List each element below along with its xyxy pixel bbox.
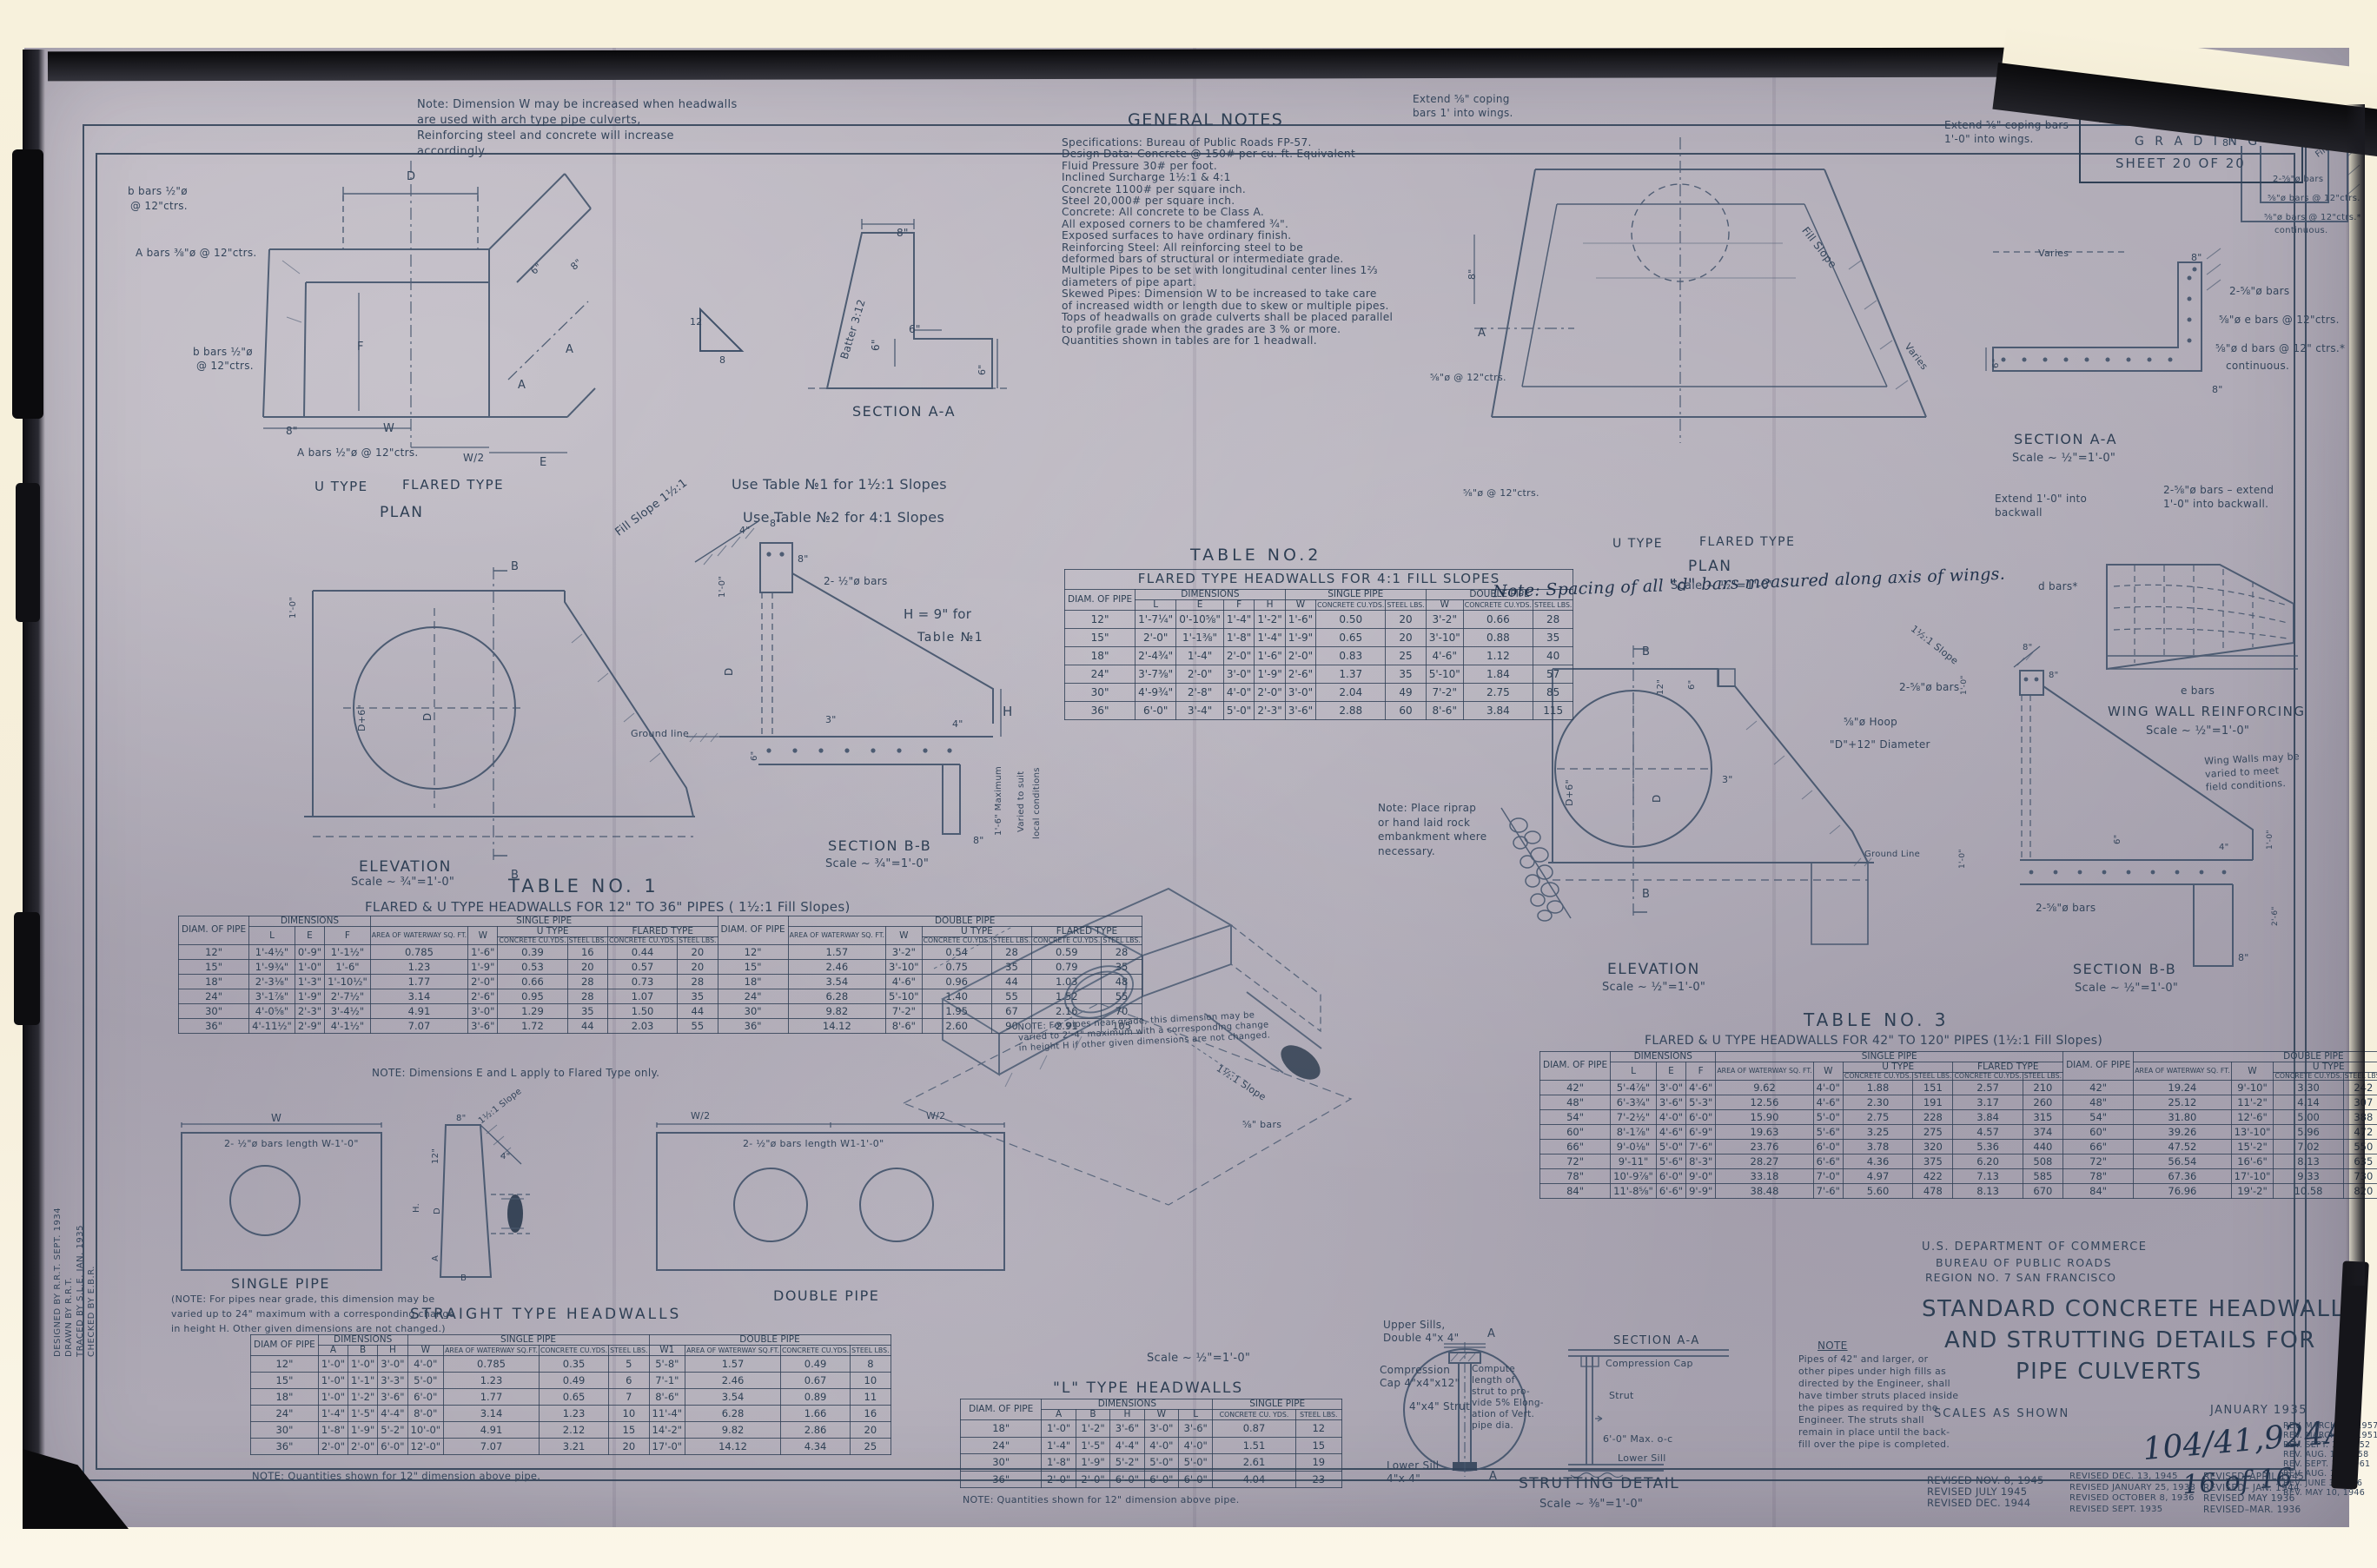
cell: 2.16 bbox=[1032, 1004, 1102, 1019]
cell: 315 bbox=[2023, 1110, 2062, 1125]
table-row: 18"2'-4¾"1'-4"2'-0"1'-6"2'-0"0.83254'-6"… bbox=[1065, 647, 1573, 665]
cell: 2.86 bbox=[780, 1422, 850, 1439]
table-row: 12"1'-7¼"0'-10⅝"1'-4"1'-2"1'-6"0.50203'-… bbox=[1065, 611, 1573, 629]
line: REV. SEPT. 15, 1952 bbox=[2283, 1440, 2377, 1450]
cell: 44 bbox=[678, 1004, 718, 1019]
cell: 0.88 bbox=[1463, 629, 1533, 647]
cell: 0.35 bbox=[539, 1356, 608, 1373]
line: Multiple Pipes to be set with longitudin… bbox=[1062, 265, 1393, 276]
cell: 3'-10" bbox=[886, 960, 923, 975]
section-aa-right-drawing bbox=[1983, 245, 2235, 414]
cell: 3'-4" bbox=[1176, 702, 1224, 720]
strut-compute-note: Computelength ofstrut to pro-vide 5% Elo… bbox=[1472, 1364, 1544, 1432]
cell: 1'-0" bbox=[348, 1356, 378, 1373]
riprap-note: Note: Place riprapor hand laid rockemban… bbox=[1378, 801, 1486, 858]
cell: 44 bbox=[991, 975, 1031, 989]
cell: 2.75 bbox=[1463, 684, 1533, 702]
cell: 60" bbox=[1540, 1125, 1611, 1140]
cell: 7.02 bbox=[2274, 1140, 2343, 1154]
cell: 10'-0" bbox=[407, 1422, 444, 1439]
cell: 2'-0" bbox=[468, 975, 498, 989]
col-header: SINGLE PIPE bbox=[1716, 1052, 2063, 1062]
col-header: CONCRETE CU.YDS. bbox=[922, 937, 991, 945]
section-aa-right-scale: Scale ~ ½"=1'-0" bbox=[2012, 452, 2115, 465]
col-header: A bbox=[318, 1346, 348, 1356]
cell: 0.57 bbox=[607, 960, 677, 975]
section-marker-a: A bbox=[518, 379, 526, 392]
cell: 2'-6" bbox=[1285, 665, 1315, 684]
cell: 1'-5" bbox=[1076, 1437, 1109, 1454]
b-bars-label2: @ 12"ctrs. bbox=[130, 200, 188, 212]
plan-left-caption: PLAN bbox=[380, 504, 423, 521]
col-header: W bbox=[1285, 600, 1315, 611]
cell: 4'-4" bbox=[1110, 1437, 1144, 1454]
line: REVISED DEC. 1944 bbox=[1927, 1498, 2044, 1509]
cell: 6'-6" bbox=[1656, 1184, 1685, 1199]
e-bars-label: e bars bbox=[2181, 685, 2215, 697]
scan-blot-left2 bbox=[16, 483, 40, 622]
col-header: F bbox=[1686, 1062, 1716, 1081]
section-marker-a: A bbox=[566, 343, 573, 356]
table3-title: TABLE NO. 3 bbox=[1804, 1009, 1950, 1030]
cell: 1'-8" bbox=[318, 1422, 348, 1439]
cell: 4'-6" bbox=[1813, 1095, 1843, 1110]
dim-d: D bbox=[433, 1207, 442, 1214]
cell: 1.72 bbox=[498, 1019, 567, 1034]
table-row: 66"9'-0⅛"5'-0"7'-6"23.766'-0"3.783205.36… bbox=[1540, 1140, 2377, 1154]
section-bb-right-caption: SECTION B-B bbox=[2073, 961, 2176, 977]
cell: 1.37 bbox=[1316, 665, 1386, 684]
plan-right-utype: U TYPE bbox=[1612, 537, 1663, 551]
cell: 6'-0" bbox=[1179, 1471, 1213, 1488]
cell: 11'-2" bbox=[2231, 1095, 2274, 1110]
table1-note: NOTE: Dimensions E and L apply to Flared… bbox=[372, 1067, 659, 1079]
revision-list-4: REV. MARCH 13, 1957REV. MARCH 21, 1951RE… bbox=[2283, 1421, 2377, 1498]
cell: 9.82 bbox=[685, 1422, 781, 1439]
cell: 0.89 bbox=[780, 1389, 850, 1406]
elevation-right-drawing bbox=[1548, 638, 1878, 951]
cell: 24" bbox=[961, 1437, 1042, 1454]
cell: 2.60 bbox=[922, 1019, 991, 1034]
cell: 5'-2" bbox=[1110, 1454, 1144, 1472]
line: deformed bars of structural or intermedi… bbox=[1062, 254, 1393, 265]
cell: 48 bbox=[1102, 975, 1142, 989]
cell: 3.14 bbox=[444, 1406, 540, 1422]
col-header: STEEL LBS. bbox=[1102, 937, 1142, 945]
cell: 1'-9" bbox=[348, 1422, 378, 1439]
col-header: CONCRETE CU.YDS. bbox=[539, 1346, 608, 1356]
cell: 1'-1⅜" bbox=[1176, 629, 1224, 647]
line: Double 4"x 4" bbox=[1383, 1332, 1459, 1345]
cell: 4.36 bbox=[1843, 1154, 1912, 1169]
cell: 1'-5" bbox=[348, 1406, 378, 1422]
table-row: 36"2'-0"2'-0"6'-0"12'-0"7.073.212017'-0"… bbox=[251, 1439, 891, 1455]
cell: 5'-10" bbox=[886, 989, 923, 1004]
dim-w2: W/2 bbox=[691, 1110, 710, 1121]
cell: 72" bbox=[1540, 1154, 1611, 1169]
cell: 5.60 bbox=[1843, 1184, 1912, 1199]
cell: 1'-4" bbox=[1042, 1437, 1076, 1454]
cell: 19'-2" bbox=[2231, 1184, 2274, 1199]
cell: 6.20 bbox=[1953, 1154, 2023, 1169]
cell: 1.77 bbox=[444, 1389, 540, 1406]
cell: 4'-6" bbox=[1426, 647, 1463, 665]
cell: 260 bbox=[2023, 1095, 2062, 1110]
scan-shadow-right bbox=[2346, 104, 2365, 1286]
cell: 28 bbox=[567, 989, 607, 1004]
plan-left-flared: FLARED TYPE bbox=[402, 477, 504, 493]
cell: 8'-6" bbox=[886, 1019, 923, 1034]
dim-6: 6" bbox=[977, 364, 988, 375]
plan-right-drawing bbox=[1453, 130, 1939, 539]
h-table1-note2: Table №1 bbox=[917, 631, 983, 645]
table-row: 60"8'-1⅞"4'-6"6'-9"19.635'-6"3.252754.57… bbox=[1540, 1125, 2377, 1140]
cell: 5'-0" bbox=[1656, 1140, 1685, 1154]
cell: 8'-3" bbox=[1686, 1154, 1716, 1169]
line: Compute bbox=[1472, 1364, 1544, 1375]
cell: 6'-0" bbox=[1656, 1169, 1685, 1184]
cell: 6'-9" bbox=[1686, 1125, 1716, 1140]
dim-f: F bbox=[357, 341, 364, 354]
cell: 8'-6" bbox=[1426, 702, 1463, 720]
section-aa-left-drawing bbox=[808, 219, 1008, 414]
line: (NOTE: For pipes near grade, this dimens… bbox=[171, 1292, 455, 1307]
cell: 1.23 bbox=[539, 1406, 608, 1422]
cell: 9'-10" bbox=[2231, 1081, 2274, 1095]
cell: 36" bbox=[1065, 702, 1136, 720]
cell: 3.54 bbox=[685, 1389, 781, 1406]
dim-8: 8" bbox=[798, 553, 809, 565]
cell: 0.96 bbox=[922, 975, 991, 989]
line: 4"x 4" bbox=[1387, 1472, 1439, 1485]
cell: 0.65 bbox=[1316, 629, 1386, 647]
cell: 0.83 bbox=[1316, 647, 1386, 665]
line: have timber struts placed inside bbox=[1798, 1390, 1958, 1402]
cell: 3'-6" bbox=[378, 1389, 407, 1406]
line: CHECKED BY E.B.R. bbox=[86, 983, 97, 1357]
cell: 12'-0" bbox=[407, 1439, 444, 1455]
elevation-left-scale: Scale ~ ¾"=1'-0" bbox=[351, 876, 454, 889]
dim-6: 6" bbox=[909, 323, 921, 335]
cell: 15" bbox=[718, 960, 788, 975]
cell: 5'-0" bbox=[1223, 702, 1254, 720]
line: REV. MARCH 21, 1951 bbox=[2283, 1431, 2377, 1440]
dim-8: 8" bbox=[2238, 952, 2249, 963]
col-header: DIAM. OF PIPE bbox=[2063, 1052, 2134, 1081]
max-spacing-label: 6'-0" Max. o-c bbox=[1603, 1433, 1672, 1445]
blueprint-sheet: Note: Dimension W may be increased when … bbox=[0, 0, 2377, 1568]
bars-label: 2-⅝"ø bars bbox=[2229, 285, 2289, 297]
cell: 2.12 bbox=[539, 1422, 608, 1439]
iso-scale: Scale ~ ½"=1'-0" bbox=[1147, 1352, 1250, 1365]
cell: 12'-6" bbox=[2231, 1110, 2274, 1125]
cell: 3'-0" bbox=[1223, 665, 1254, 684]
cell: 12" bbox=[179, 945, 249, 960]
wing-wall-scale: Scale ~ ½"=1'-0" bbox=[2146, 724, 2249, 738]
cell: 6 bbox=[609, 1373, 649, 1389]
cell: 36" bbox=[179, 1019, 249, 1034]
cell: 7'-6" bbox=[1686, 1140, 1716, 1154]
cell: 3'-6" bbox=[1110, 1420, 1144, 1438]
cell: 12 bbox=[1295, 1420, 1341, 1438]
cell: 2'-0" bbox=[1136, 629, 1176, 647]
cell: 5'-0" bbox=[407, 1373, 444, 1389]
table1-title: TABLE NO. 1 bbox=[508, 876, 659, 896]
cell: 4'-6" bbox=[1656, 1125, 1685, 1140]
use-table1-note: Use Table №1 for 1½:1 Slopes bbox=[732, 476, 947, 493]
col-header: DIMENSIONS bbox=[249, 916, 371, 927]
cell: 0.87 bbox=[1213, 1420, 1295, 1438]
lower-sill-label: Lower Sill bbox=[1618, 1452, 1666, 1464]
section-bb-left-scale: Scale ~ ¾"=1'-0" bbox=[825, 857, 929, 870]
cell: 4'-1½" bbox=[325, 1019, 371, 1034]
cell: 1.07 bbox=[607, 989, 677, 1004]
cell: 10 bbox=[851, 1373, 891, 1389]
cell: 1'-2" bbox=[348, 1389, 378, 1406]
cell: 585 bbox=[2023, 1169, 2062, 1184]
col-header: DIMENSIONS bbox=[1136, 589, 1286, 599]
table-row: 36"6'-0"3'-4"5'-0"2'-3"3'-6"2.88608'-6"3… bbox=[1065, 702, 1573, 720]
cell: 151 bbox=[1913, 1081, 1953, 1095]
general-notes-title: GENERAL NOTES bbox=[1128, 110, 1283, 129]
line: REVISED OCTOBER 8, 1936 bbox=[2069, 1493, 2195, 1505]
line: Lower Sill bbox=[1387, 1459, 1439, 1472]
cell: 5'-0" bbox=[1179, 1454, 1213, 1472]
line: Upper Sills, bbox=[1383, 1319, 1459, 1332]
line: are used with arch type pipe culverts, bbox=[417, 113, 738, 129]
cell: 56.54 bbox=[2134, 1154, 2231, 1169]
cell: 4'-0" bbox=[1179, 1437, 1213, 1454]
cell: 3'-0" bbox=[378, 1356, 407, 1373]
dim-6: 6" bbox=[870, 339, 882, 351]
line: vide 5% Elong- bbox=[1472, 1398, 1544, 1409]
cell: 5'-2" bbox=[378, 1422, 407, 1439]
l-table-title: "L" TYPE HEADWALLS bbox=[1053, 1379, 1243, 1397]
cell: 55 bbox=[1102, 989, 1142, 1004]
cell: 5'-0" bbox=[1813, 1110, 1843, 1125]
strutting-detail-scale: Scale ~ ⅜"=1'-0" bbox=[1539, 1498, 1643, 1511]
cell: 2.46 bbox=[685, 1373, 781, 1389]
cell: 17'-0" bbox=[649, 1439, 685, 1455]
dim-6: 6" bbox=[1687, 679, 1697, 690]
dim-w2: W/2 bbox=[926, 1110, 945, 1121]
cell: 0.59 bbox=[1032, 945, 1102, 960]
line: REV. MARCH 13, 1957 bbox=[2283, 1421, 2377, 1431]
headwall-profile-drawing bbox=[404, 1112, 534, 1290]
cell: 47.52 bbox=[2134, 1140, 2231, 1154]
cell: 48" bbox=[1540, 1095, 1611, 1110]
bars-label: 2- ½"ø bars bbox=[824, 575, 888, 587]
col-header: STEEL LBS. bbox=[2023, 1073, 2062, 1081]
dim-h: H. bbox=[412, 1203, 421, 1213]
table-row: 42"5'-4⅞"3'-0"4'-6"9.624'-0"1.881512.572… bbox=[1540, 1081, 2377, 1095]
cell: 85 bbox=[1533, 684, 1573, 702]
table1: DIAM. OF PIPEDIMENSIONSSINGLE PIPEDIAM. … bbox=[178, 916, 1142, 1034]
cell: 3.84 bbox=[1463, 702, 1533, 720]
table-row: 30"1'-8"1'-9"5'-2"10'-0"4.912.121514'-2"… bbox=[251, 1422, 891, 1439]
l-table-note: NOTE: Quantities shown for 12" dimension… bbox=[963, 1494, 1240, 1505]
bars-label: 2- ½"ø bars length W1-1'-0" bbox=[743, 1138, 884, 1149]
dim-4: 4" bbox=[739, 525, 751, 536]
cell: 24" bbox=[179, 989, 249, 1004]
cell: 2'-0" bbox=[1255, 684, 1285, 702]
cell: 36" bbox=[251, 1439, 319, 1455]
cell: 191 bbox=[1913, 1095, 1953, 1110]
elevation-left-caption: ELEVATION bbox=[359, 858, 452, 876]
line: Specifications: Bureau of Public Roads F… bbox=[1062, 137, 1393, 149]
dim-w2: W/2 bbox=[463, 452, 484, 464]
cell: 7'-2" bbox=[1426, 684, 1463, 702]
col-header: L bbox=[1136, 600, 1176, 611]
cell: 228 bbox=[1913, 1110, 1953, 1125]
scan-shadow-top bbox=[48, 48, 2037, 82]
cell: 6'-6" bbox=[1813, 1154, 1843, 1169]
table-row: 24"1'-4"1'-5"4'-4"8'-0"3.141.231011'-4"6… bbox=[251, 1406, 891, 1422]
ground-line-label: Ground Line bbox=[1864, 850, 1920, 859]
table-row: 84"11'-8⅝"6'-6"9'-9"38.487'-6"5.604788.1… bbox=[1540, 1184, 2377, 1199]
cell: 39.26 bbox=[2134, 1125, 2231, 1140]
cell: 1.23 bbox=[370, 960, 467, 975]
dim-8: 8" bbox=[2049, 671, 2059, 680]
cell: 3.25 bbox=[1843, 1125, 1912, 1140]
line: Quantities shown in tables are for 1 hea… bbox=[1062, 335, 1393, 347]
straight-table-note: NOTE: Quantities shown for 12" dimension… bbox=[252, 1470, 540, 1482]
cell: 5'-0" bbox=[1144, 1454, 1178, 1472]
cell: 15 bbox=[609, 1422, 649, 1439]
cell: 19.63 bbox=[1716, 1125, 1813, 1140]
single-pipe-caption: SINGLE PIPE bbox=[231, 1275, 330, 1292]
col-header: W bbox=[1144, 1410, 1178, 1420]
cell: 4'-9¾" bbox=[1136, 684, 1176, 702]
section-bb-right-scale: Scale ~ ½"=1'-0" bbox=[2075, 982, 2178, 995]
cell: 7'-6" bbox=[1813, 1184, 1843, 1199]
cell: 1'-1" bbox=[348, 1373, 378, 1389]
col-header: DIAM. OF PIPE bbox=[179, 916, 249, 945]
cell: 19.24 bbox=[2134, 1081, 2231, 1095]
col-header: E bbox=[295, 927, 324, 945]
cell: 49 bbox=[1386, 684, 1426, 702]
cell: 10 bbox=[609, 1406, 649, 1422]
line: embankment where bbox=[1378, 830, 1486, 844]
cell: 1.29 bbox=[498, 1004, 567, 1019]
max-note: 1'-6" Maximum bbox=[994, 766, 1003, 836]
cell: 1.84 bbox=[1463, 665, 1533, 684]
col-header: CONCRETE CU.YDS. bbox=[2274, 1073, 2343, 1081]
dim-d: D bbox=[1651, 794, 1663, 803]
straight-table: DIAM OF PIPEDIMENSIONSSINGLE PIPEDOUBLE … bbox=[250, 1334, 891, 1455]
cell: 3.14 bbox=[370, 989, 467, 1004]
cell: 55 bbox=[678, 1019, 718, 1034]
cell: 28 bbox=[991, 945, 1031, 960]
col-header: DIAM. OF PIPE bbox=[961, 1399, 1042, 1420]
line: Concrete: All concrete to be Class A. bbox=[1062, 207, 1393, 218]
cell: 1.50 bbox=[607, 1004, 677, 1019]
headwall-width-note: Note: Dimension W may be increased when … bbox=[417, 97, 738, 160]
line: Design Data: Concrete @ 150# per cu. ft.… bbox=[1062, 149, 1393, 160]
line: All exposed corners to be chamfered ¾". bbox=[1062, 219, 1393, 230]
col-header: CONCRETE CU.YDS. bbox=[1463, 600, 1533, 611]
cell: 4'-0" bbox=[1144, 1437, 1178, 1454]
cell: 25 bbox=[851, 1439, 891, 1455]
cell: 0'-9" bbox=[295, 945, 324, 960]
cell: 35 bbox=[678, 989, 718, 1004]
cell: 1'-6" bbox=[1255, 647, 1285, 665]
bars-label: 2-⅝"ø bars bbox=[2036, 902, 2096, 914]
col-header: STEEL LBS. bbox=[1295, 1410, 1341, 1420]
cell: 1'-2" bbox=[1076, 1420, 1109, 1438]
col-header: SINGLE PIPE bbox=[1213, 1399, 1342, 1410]
cell: 25.12 bbox=[2134, 1095, 2231, 1110]
plan-left-drawing bbox=[248, 161, 595, 473]
cell: 2'-0" bbox=[1285, 647, 1315, 665]
col-header: U TYPE bbox=[498, 927, 608, 937]
col-header: CONCRETE CU.YDS. bbox=[1953, 1073, 2023, 1081]
cell: 1'-6" bbox=[1285, 611, 1315, 629]
cell: 1.57 bbox=[788, 945, 885, 960]
col-header: W bbox=[468, 927, 498, 945]
table-row: 54"7'-2½"4'-0"6'-0"15.905'-0"2.752283.84… bbox=[1540, 1110, 2377, 1125]
table3-subtitle: FLARED & U TYPE HEADWALLS FOR 42" TO 120… bbox=[1645, 1034, 2102, 1048]
upper-sills-label: Upper Sills,Double 4"x 4" bbox=[1383, 1319, 1459, 1345]
varied-note2: local conditions bbox=[1032, 767, 1042, 839]
cell: 18" bbox=[718, 975, 788, 989]
dim-1-0: 1'-0" bbox=[288, 597, 298, 619]
cell: 1'-9" bbox=[1285, 629, 1315, 647]
cell: 5 bbox=[609, 1356, 649, 1373]
cell: 18" bbox=[1065, 647, 1136, 665]
scales-as-shown: SCALES AS SHOWN bbox=[1934, 1407, 2069, 1420]
cell: 48" bbox=[2063, 1095, 2134, 1110]
cell: 16'-6" bbox=[2231, 1154, 2274, 1169]
cell: 7'-1" bbox=[649, 1373, 685, 1389]
dim-a: A bbox=[431, 1255, 440, 1261]
plan-left-utype: U TYPE bbox=[315, 479, 368, 494]
col-header: DIAM. OF PIPE bbox=[1065, 589, 1136, 610]
cell: 4.04 bbox=[1213, 1471, 1295, 1488]
cell: 1'-8" bbox=[1042, 1454, 1076, 1472]
cell: 14'-2" bbox=[649, 1422, 685, 1439]
cell: 9.82 bbox=[788, 1004, 885, 1019]
cell: 1.57 bbox=[685, 1356, 781, 1373]
col-header: DIAM. OF PIPE bbox=[1540, 1052, 1611, 1081]
cell: 440 bbox=[2023, 1140, 2062, 1154]
bars-label2: continuous. bbox=[2226, 360, 2289, 372]
line: Note: Dimension W may be increased when … bbox=[417, 97, 738, 113]
col-header: AREA OF WATERWAY SQ. FT. bbox=[2134, 1062, 2231, 1081]
margin-credits: DESIGNED BY R.R.T. SEPT. 1934DRAWN BY R.… bbox=[52, 983, 97, 1357]
col-header: W bbox=[1426, 600, 1463, 611]
cell: 55 bbox=[991, 989, 1031, 1004]
revision-list-1: REVISED NOV. 8, 1945REVISED JULY 1945REV… bbox=[1927, 1475, 2044, 1509]
cell: 15'-2" bbox=[2231, 1140, 2274, 1154]
cell: 9.33 bbox=[2274, 1169, 2343, 1184]
cell: 3.17 bbox=[1953, 1095, 2023, 1110]
line: strut to pro- bbox=[1472, 1386, 1544, 1398]
scan-blot-left3 bbox=[14, 912, 40, 1025]
cell: 3'-6" bbox=[1656, 1095, 1685, 1110]
dim-8: 8" bbox=[456, 1114, 467, 1123]
cell: 38.48 bbox=[1716, 1184, 1813, 1199]
cell: 2'-8" bbox=[1176, 684, 1224, 702]
table-row: 30"4'-9¾"2'-8"4'-0"2'-0"3'-0"2.04497'-2"… bbox=[1065, 684, 1573, 702]
cell: 2.57 bbox=[1953, 1081, 2023, 1095]
cell: 2'-4¾" bbox=[1136, 647, 1176, 665]
cell: 1'-3" bbox=[295, 975, 324, 989]
cell: 1'-4" bbox=[1223, 611, 1254, 629]
cell: 3'-0" bbox=[468, 1004, 498, 1019]
col-header: CONCRETE CU.YDS. bbox=[780, 1346, 850, 1356]
agency-line2: BUREAU OF PUBLIC ROADS bbox=[1936, 1256, 2112, 1269]
